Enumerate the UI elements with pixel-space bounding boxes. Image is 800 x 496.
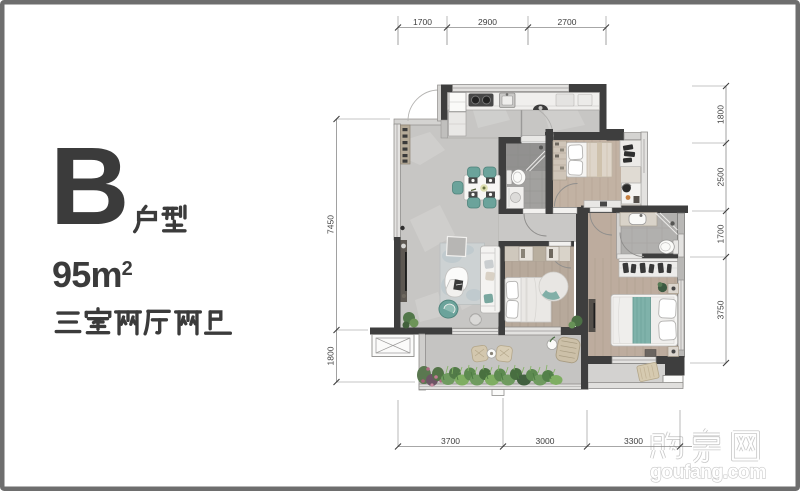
svg-text:2500: 2500 [716,167,726,186]
svg-text:7450: 7450 [326,215,336,234]
svg-text:goufang.com: goufang.com [650,461,766,483]
svg-text:2900: 2900 [478,17,497,27]
svg-text:3300: 3300 [624,436,643,446]
svg-text:1700: 1700 [413,17,432,27]
svg-text:3000: 3000 [536,436,555,446]
svg-text:1700: 1700 [716,224,726,243]
svg-text:95m2: 95m2 [52,254,133,295]
svg-text:2700: 2700 [558,17,577,27]
svg-text:1800: 1800 [716,105,726,124]
svg-text:1800: 1800 [326,346,336,365]
svg-text:3700: 3700 [441,436,460,446]
svg-text:B: B [50,125,129,248]
svg-text:3750: 3750 [716,300,726,319]
